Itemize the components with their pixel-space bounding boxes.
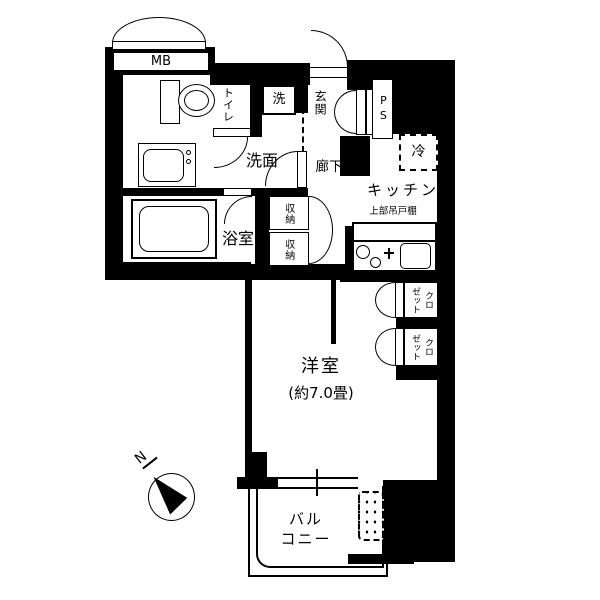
shoe-cabinet-door-arc — [334, 90, 356, 112]
kitchen-sink-fixture — [400, 243, 431, 269]
kitchen-counter-divider — [352, 240, 437, 242]
washroom-door-leaf — [297, 151, 307, 188]
bathtub-inner — [139, 206, 209, 252]
floor-plan: MB トイレ 洗 玄関 PS 廊下 洗面 浴室 収納 収納 冷 キッチン 上部吊… — [0, 0, 600, 600]
wall — [123, 188, 223, 196]
washer-label: 洗 — [262, 85, 296, 115]
washroom-label: 洗面 — [238, 151, 286, 171]
corridor-label: 廊下 — [310, 158, 348, 176]
wall — [252, 188, 308, 196]
toilet-tank-fixture — [160, 80, 180, 124]
closet-door-arc — [375, 347, 395, 366]
wall — [105, 262, 251, 280]
evacuation-hatch — [358, 491, 384, 541]
bathroom-door-arc — [224, 196, 252, 224]
fridge-space-label: 冷 — [399, 134, 438, 171]
compass-north-label: N — [125, 443, 156, 474]
stove-burner-icon — [356, 245, 370, 259]
balcony-outline — [248, 575, 388, 577]
wall — [383, 480, 455, 562]
storage-door-arc — [309, 196, 333, 230]
western-room-size-label: (約7.0畳) — [272, 382, 370, 405]
washbasin-bowl — [143, 149, 184, 182]
storage-door-arc — [309, 230, 333, 264]
washbasin-knob — [186, 159, 191, 164]
wall — [250, 75, 262, 137]
wall — [251, 452, 267, 480]
wall — [105, 75, 123, 262]
upper-cupboard-label: 上部吊戸棚 — [355, 206, 431, 219]
closet-door-arc — [375, 300, 395, 318]
stove-burner-icon — [370, 257, 381, 268]
toilet-seat-fixture — [184, 90, 209, 111]
closet-door-leaf — [395, 282, 404, 318]
western-room-label: 洋室 — [293, 354, 349, 380]
closet-label: クロ ゼット — [404, 282, 438, 318]
wall — [393, 88, 440, 134]
bathroom-label: 浴室 — [214, 228, 262, 249]
mb-door-arc — [112, 17, 159, 43]
toilet-door-leaf — [213, 128, 251, 137]
kitchen-label: キッチン — [358, 180, 448, 200]
toilet-label: トイレ — [219, 82, 235, 128]
entrance-door-arc — [311, 30, 348, 67]
wall — [437, 60, 455, 480]
pipe-space-label: PS — [372, 79, 393, 139]
balcony-outline — [386, 562, 414, 564]
balcony-outline — [386, 562, 388, 577]
bathroom-door-leaf — [223, 188, 252, 196]
wall — [245, 280, 252, 480]
balcony-label: バル コニー — [268, 506, 344, 552]
shoe-cabinet-door-leaf — [356, 89, 366, 135]
wall — [331, 280, 336, 344]
storage-label: 収納 — [281, 198, 295, 229]
closet-door-leaf — [395, 328, 404, 366]
entrance-label: 玄関 — [312, 85, 328, 121]
entrance-door-leaf — [309, 67, 348, 78]
balcony-outline — [248, 481, 250, 577]
storage-label: 収納 — [281, 234, 295, 265]
washbasin-knob — [186, 150, 191, 155]
mb-door-arc — [159, 17, 206, 43]
wall — [396, 366, 438, 380]
shoe-cabinet-door-arc — [334, 112, 356, 134]
entrance-step-line — [302, 108, 304, 152]
closet-door-arc — [375, 282, 395, 300]
meter-box-label: MB — [113, 52, 209, 71]
closet-door-arc — [375, 328, 395, 347]
closet-label: クロ ゼット — [404, 328, 438, 366]
mb-door-leaf — [112, 41, 206, 50]
faucet-icon — [384, 252, 394, 254]
wall — [396, 318, 438, 328]
